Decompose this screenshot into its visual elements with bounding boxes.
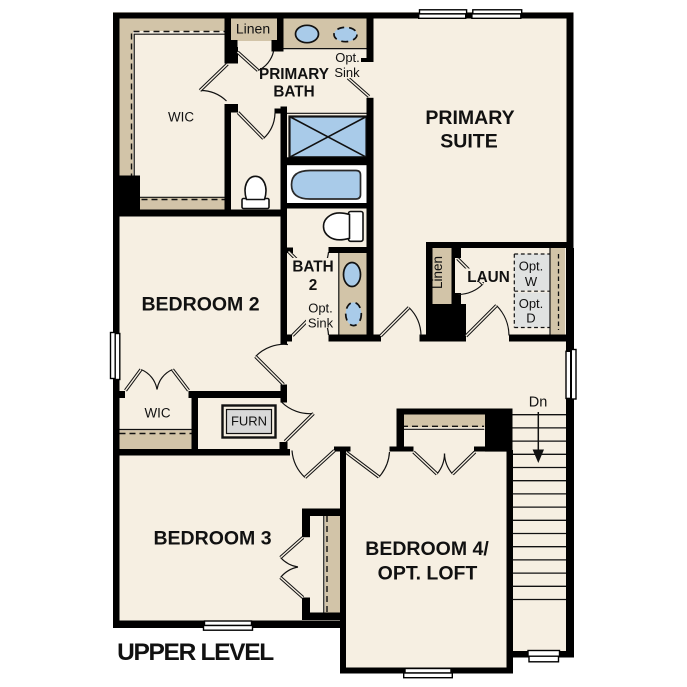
svg-text:Opt.: Opt. bbox=[519, 296, 544, 311]
svg-text:BATH: BATH bbox=[273, 84, 314, 101]
svg-text:Linen: Linen bbox=[430, 256, 445, 289]
svg-text:BEDROOM 4/: BEDROOM 4/ bbox=[365, 538, 489, 560]
svg-text:LAUN: LAUN bbox=[467, 269, 510, 286]
svg-text:Opt.: Opt. bbox=[519, 259, 544, 274]
svg-text:Linen: Linen bbox=[236, 21, 270, 37]
svg-text:BATH: BATH bbox=[292, 259, 333, 276]
svg-text:Sink: Sink bbox=[334, 65, 360, 80]
svg-text:2: 2 bbox=[309, 277, 318, 294]
svg-text:PRIMARY: PRIMARY bbox=[425, 107, 514, 129]
svg-text:Dn: Dn bbox=[529, 395, 548, 411]
svg-text:D: D bbox=[526, 311, 535, 326]
svg-text:WIC: WIC bbox=[168, 110, 194, 125]
svg-text:Opt.: Opt. bbox=[308, 301, 333, 316]
svg-text:UPPER LEVEL: UPPER LEVEL bbox=[117, 639, 274, 666]
svg-text:FURN: FURN bbox=[231, 414, 267, 429]
svg-text:BEDROOM 2: BEDROOM 2 bbox=[141, 294, 259, 316]
svg-text:PRIMARY: PRIMARY bbox=[259, 66, 329, 83]
svg-text:BEDROOM 3: BEDROOM 3 bbox=[153, 528, 271, 550]
svg-text:WIC: WIC bbox=[144, 406, 170, 421]
svg-text:SUITE: SUITE bbox=[440, 131, 497, 153]
svg-text:Sink: Sink bbox=[308, 315, 334, 330]
svg-text:OPT. LOFT: OPT. LOFT bbox=[378, 563, 478, 585]
svg-text:W: W bbox=[525, 274, 538, 289]
svg-text:Opt.: Opt. bbox=[335, 50, 360, 65]
